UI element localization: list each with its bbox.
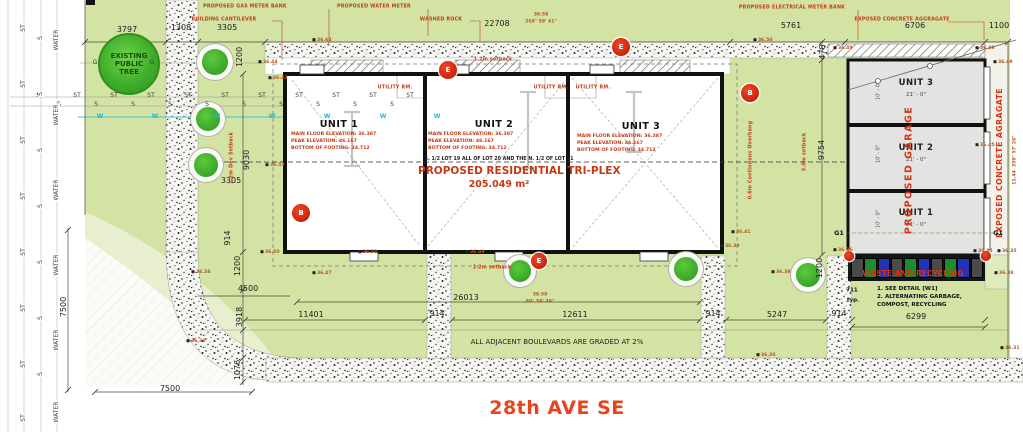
utility-line-label: WATER (54, 104, 60, 127)
boulevard-grading-note: ALL ADJACENT BOULEVARDS ARE GRADED AT 2% (471, 338, 644, 346)
callout-label: UTILITY RM. (576, 87, 611, 92)
utility-line-label: ST (21, 359, 27, 368)
building-area: 205.049 m² (418, 179, 580, 190)
spot-elevation: 36.49 (833, 46, 852, 52)
dim-label: 4500 (238, 285, 258, 293)
spot-elevation: 36.39 (720, 244, 739, 250)
utility-line-label: WATER (54, 401, 60, 424)
utility-line-label: S (353, 102, 357, 108)
spot-elevation: 36.49 (975, 46, 994, 52)
unit-1-main-floor: MAIN FLOOR ELEVATION: 36.387 (291, 132, 387, 139)
garage-unit-2: UNIT 2 21' - 0" (886, 143, 946, 163)
unit-2-title: UNIT 2 (428, 119, 560, 130)
utility-line-label: G (93, 60, 98, 66)
dim-label: 5247 (767, 311, 787, 319)
utility-line-label: WATER (54, 179, 60, 202)
unit-3-info: UNIT 3 MAIN FLOOR ELEVATION: 36.387 PEAK… (577, 121, 705, 154)
water-line-label: W (380, 114, 387, 120)
unit-2-peak: PEAK ELEVATION: 46.167 (428, 139, 560, 146)
spot-elevation: 36.38 (994, 271, 1013, 277)
utility-line-label: S (38, 203, 44, 209)
dim-label: 9030 (243, 150, 251, 170)
utility-line-label: S (38, 35, 44, 41)
bearing-label: 269° 59' 41" (525, 21, 557, 26)
callout-label: WASHED ROCK (420, 19, 462, 24)
utility-line-label: ST (110, 93, 117, 99)
spot-elevation: 36.35 (973, 249, 992, 255)
spot-elevation: 36.47 (312, 271, 331, 277)
spot-elevation: 36.32 (186, 339, 205, 345)
spot-elevation: 36.38 (771, 270, 790, 276)
tree-symbol (509, 260, 531, 282)
water-line-label: W (152, 114, 159, 120)
spot-elevation: 36.49 (465, 250, 484, 256)
street-name: 28th AVE SE (489, 397, 625, 419)
spot-elevation: 36.51 (358, 250, 377, 256)
spot-elevation: 36.58 (191, 270, 210, 276)
utility-line-label: ST (332, 93, 339, 99)
dim-label: 3797 (117, 26, 137, 34)
unit-3-peak: PEAK ELEVATION: 46.167 (577, 141, 705, 148)
dim-label: 26013 (453, 294, 478, 302)
lot-description: S. 1/2 LOT 19 ALL OF LOT 20 AND THE N. 1… (418, 157, 580, 162)
waste-recycling-title: WASTE AND RECYCLING (862, 270, 963, 278)
utility-line-label: S (38, 91, 44, 97)
garage-unit-1: UNIT 1 21' - 0" (886, 208, 946, 228)
dim-label: 1308 (171, 24, 191, 32)
unit-1-title: UNIT 1 (291, 119, 387, 130)
utility-line-label: ST (21, 191, 27, 200)
triplex-title-block: S. 1/2 LOT 19 ALL OF LOT 20 AND THE N. 1… (418, 157, 580, 190)
bearing-label: 39.58 (534, 14, 549, 19)
callout-label: BUILDING CANTILEVER (192, 19, 257, 24)
utility-line-label: WATER (54, 29, 60, 52)
utility-marker-B: B (741, 84, 759, 102)
dim-label: 914 (224, 230, 232, 245)
dim-label: 1200 (816, 258, 824, 278)
existing-public-tree-label: EXISTING (111, 52, 148, 60)
spot-elevation: 36.45 (975, 143, 994, 149)
garage-unit-3: UNIT 3 21' - 0" (886, 78, 946, 98)
waste-bin-gray (971, 258, 984, 278)
utility-line-label: S (38, 371, 44, 377)
utility-line-label: WATER (54, 329, 60, 352)
water-line-label: W (434, 114, 441, 120)
garage-unit-2-title: UNIT 2 (886, 143, 946, 153)
note-label: 711 (846, 288, 857, 294)
utility-line-label: S (131, 102, 135, 108)
utility-line-label: S (38, 147, 44, 153)
garage-depth-dim: 10' - 0" (877, 210, 882, 228)
utility-line-label: ST (369, 93, 376, 99)
dim-label: 1200 (236, 47, 244, 67)
callout-label: 0.6m Continuous Overhang (750, 121, 755, 200)
tree-symbol (202, 49, 228, 75)
utility-line-label: ST (221, 93, 228, 99)
unit-3-main-floor: MAIN FLOOR ELEVATION: 36.387 (577, 134, 705, 141)
tree-symbol (194, 153, 218, 177)
waste-note-1: 1. SEE DETAIL [W1] (877, 286, 962, 294)
utility-line-label: ST (406, 93, 413, 99)
spot-elevation: 36.64 (312, 38, 331, 44)
dim-label: 914 (705, 310, 720, 318)
callout-label: PROPOSED WATER METER (337, 6, 411, 11)
dim-label: 1200 (234, 256, 242, 276)
bearing-label: 11.44 359° 57' 26" (1014, 135, 1019, 184)
garage-unit-1-size: 21' - 0" (886, 222, 946, 228)
gridline-label: G1 (834, 230, 844, 237)
exposed-aggregate-label: EXPOSED CONCRETE AGRAGATE (996, 88, 1004, 238)
dim-label: 914 (429, 310, 444, 318)
callout-label: UTILITY RM. (534, 87, 569, 92)
utility-line-label: ST (21, 247, 27, 256)
dim-label: 9754 (818, 140, 826, 160)
bearing-label: 89° 59' 49" (526, 301, 554, 306)
utility-line-label: ST (184, 93, 191, 99)
dim-label: 6299 (906, 313, 926, 321)
dim-label: 22708 (484, 20, 509, 28)
garage-unit-3-size: 21' - 0" (886, 92, 946, 98)
utility-line-label: ST (295, 93, 302, 99)
callout-label: PROPOSED ELECTRICAL METER BANK (739, 7, 845, 12)
garage-unit-1-title: UNIT 1 (886, 208, 946, 218)
utility-line-label: ST (21, 303, 27, 312)
utility-marker-E: E (612, 38, 630, 56)
unit-1-info: UNIT 1 MAIN FLOOR ELEVATION: 36.387 PEAK… (291, 119, 387, 152)
water-line-label: W (97, 114, 104, 120)
utility-marker-B: B (292, 204, 310, 222)
spot-elevation: 36.50 (753, 38, 772, 44)
utility-line-label: ST (21, 413, 27, 422)
waste-recycling-notes: 1. SEE DETAIL [W1] 2. ALTERNATING GARBAG… (877, 286, 962, 309)
dim-label: 3305 (217, 24, 237, 32)
utility-line-label: S (390, 102, 394, 108)
garage-depth-dim: 10' - 0" (877, 82, 882, 100)
spot-elevation: 36.43 (268, 76, 287, 82)
dim-label: 1100 (989, 22, 1009, 30)
garage-unit-2-size: 21' - 0" (886, 157, 946, 163)
unit-3-title: UNIT 3 (577, 121, 705, 132)
spot-elevation: 36.26 (756, 353, 775, 359)
utility-line-label: WATER (54, 254, 60, 277)
waste-note-2: 2. ALTERNATING GARBAGE, (877, 294, 962, 302)
dim-label: 12611 (562, 311, 587, 319)
note-label: typ. (847, 298, 859, 304)
spot-elevation: 36.36 (833, 248, 852, 254)
utility-line-label: ST (147, 93, 154, 99)
water-line-label: W (324, 114, 331, 120)
unit-1-footing: BOTTOM OF FOOTING: 34.712 (291, 146, 387, 153)
utility-line-label: ST (21, 79, 27, 88)
bearing-label: 39.58 (533, 294, 548, 299)
dim-label: 3918 (236, 307, 244, 327)
dim-label: 5761 (781, 22, 801, 30)
dim-label: 478 (819, 44, 827, 59)
spot-elevation: 36.41 (731, 230, 750, 236)
unit-2-main-floor: MAIN FLOOR ELEVATION: 36.387 (428, 132, 560, 139)
utility-line-label: ST (21, 23, 27, 32)
water-line-label: W (269, 114, 276, 120)
callout-label: EXPOSED CONCRETE AGGRAGATE (854, 19, 949, 24)
utility-line-label: S (316, 102, 320, 108)
spot-elevation: 36.31 (1000, 346, 1019, 352)
proposed-garage-label: PROPOSED GARAGE (904, 106, 914, 235)
utility-line-label: ST (73, 93, 80, 99)
garage-depth-dim: 10' - 0" (877, 145, 882, 163)
spot-elevation: 36.50 (260, 250, 279, 256)
utility-line-label: S (205, 102, 209, 108)
callout-label: 1.2m Dev Setback (231, 132, 236, 184)
site-plan-drawing: EXISTING PUBLIC TREE UNIT 1 MAIN FLOOR E… (0, 0, 1023, 432)
spot-elevation: 36.53 (265, 163, 284, 169)
dim-label: 914 (831, 310, 846, 318)
dim-label: 1076 (234, 360, 242, 380)
dim-label: 11401 (298, 311, 323, 319)
waste-note-3: COMPOST, RECYCLING (877, 302, 962, 310)
utility-line-label: S (38, 259, 44, 265)
unit-2-footing: BOTTOM OF FOOTING: 34.712 (428, 146, 560, 153)
utility-marker-E: E (439, 61, 457, 79)
unit-3-footing: BOTTOM OF FOOTING: 34.712 (577, 148, 705, 155)
utility-line-label: ST (258, 93, 265, 99)
utility-line-label: S (168, 102, 172, 108)
unit-1-peak: PEAK ELEVATION: 46.167 (291, 139, 387, 146)
callout-label: PROPOSED GAS METER BANK (203, 6, 287, 11)
existing-public-tree-label: TREE (119, 68, 139, 76)
water-line-label: W (214, 114, 221, 120)
existing-public-tree-label: PUBLIC (115, 60, 143, 68)
callout-label: 1.2m setback (473, 267, 512, 272)
utility-line-label: ST (21, 135, 27, 144)
unit-2-info: UNIT 2 MAIN FLOOR ELEVATION: 36.387 PEAK… (428, 119, 560, 152)
spot-elevation: 36.44 (258, 60, 277, 66)
gridline-label: G1 (993, 230, 1003, 237)
spot-elevation: 36.49 (993, 60, 1012, 66)
spot-elevation: 36.35 (997, 249, 1016, 255)
dim-label: 7500 (160, 385, 180, 393)
utility-line-label: S (279, 102, 283, 108)
callout-label: 3.0m setback (804, 133, 809, 172)
dim-label: 7500 (60, 297, 68, 317)
utility-line-label: S (38, 315, 44, 321)
utility-marker-E: E (531, 253, 547, 269)
utility-line-label: S (94, 102, 98, 108)
tree-symbol (674, 257, 698, 281)
callout-label: 1.2m setback (474, 59, 513, 64)
callout-label: UTILITY RM. (378, 87, 413, 92)
utility-line-label: G (150, 60, 155, 66)
utility-line-label: S (242, 102, 246, 108)
garage-unit-3-title: UNIT 3 (886, 78, 946, 88)
building-title: PROPOSED RESIDENTIAL TRI-PLEX (418, 165, 580, 177)
